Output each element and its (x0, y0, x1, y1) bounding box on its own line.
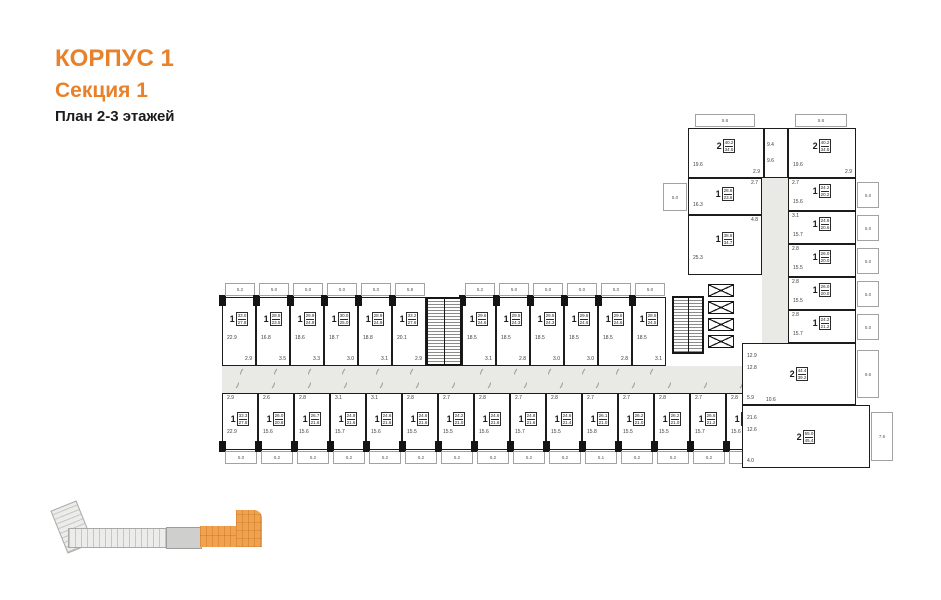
apartment-unit[interactable]: 128.924.918.83.15.0 (358, 297, 392, 366)
balcony: 5.0 (857, 215, 879, 241)
unit-rooms-count: 1 (813, 319, 818, 328)
apartment-unit[interactable]: 240.234.519.62.95.8 (688, 128, 764, 178)
apartment-unit[interactable]: 124.621.415.52.85.2 (546, 393, 582, 450)
unit-label: 124.620.6 (789, 217, 855, 231)
stairwell-junction (672, 296, 704, 354)
unit-rooms-count: 1 (470, 315, 475, 324)
unit-area-box: 26.020.8 (273, 412, 286, 426)
unit-label: 129.524.3 (497, 312, 529, 326)
unit-area-box: 24.221.0 (453, 412, 466, 426)
hall-area-label: 2.8 (407, 396, 414, 401)
unit-label: 126.020.8 (259, 412, 293, 426)
hall-area-label: 2.9 (845, 170, 852, 175)
apartment-unit[interactable]: 126.721.615.62.85.2 (294, 393, 330, 450)
hall-area-label: 4.8 (751, 218, 758, 223)
apartment-unit[interactable]: 129.624.618.53.05.0 (564, 297, 598, 366)
balcony: 5.0 (857, 248, 879, 274)
balcony: 9.6 (857, 350, 879, 398)
unit-area-box: 24.821.6 (525, 412, 538, 426)
unit-rooms-count: 1 (400, 315, 405, 324)
hall-area-label: 2.7 (515, 396, 522, 401)
room-area-label: 18.6 (295, 336, 305, 341)
unit-label: 124.221.2 (789, 316, 855, 330)
apartment-unit[interactable]: 129.624.618.52.85.0 (598, 297, 632, 366)
unit-label: 124.220.2 (789, 184, 855, 198)
unit-area-box: 29.624.6 (612, 312, 625, 326)
apartment-unit[interactable]: 129.524.318.53.05.0 (530, 297, 564, 366)
unit-rooms-count: 1 (813, 253, 818, 262)
apartment-unit[interactable]: 124.621.615.52.85.2 (402, 393, 438, 450)
unit-area-total: 24.6 (563, 413, 572, 420)
unit-label: 128.524.5 (633, 312, 665, 326)
stairwell-mid (426, 297, 462, 366)
room-area-label: 18.5 (637, 336, 647, 341)
unit-rooms-count: 1 (303, 415, 308, 424)
unit-rooms-count: 1 (504, 315, 509, 324)
apartment-unit[interactable]: 240.234.519.62.95.8 (788, 128, 856, 178)
room-area-label: 19.6 (693, 163, 703, 168)
unit-rooms-count: 1 (483, 415, 488, 424)
hall-area-label: 4.0 (747, 459, 754, 464)
balcony: 5.0 (857, 314, 879, 340)
unit-label: 126.020.0 (789, 283, 855, 297)
unit-area-total: 24.6 (383, 413, 392, 420)
unit-area-living: 21.4 (563, 420, 572, 426)
unit-rooms-count: 1 (264, 315, 269, 324)
unit-area-living: 21.6 (419, 420, 428, 426)
unit-area-living: 45.4 (805, 438, 814, 444)
unit-label: 128.523.5 (257, 312, 289, 326)
unit-area-box: 33.227.6 (406, 312, 419, 326)
apartment-unit[interactable]: 138.634.725.34.8 (688, 215, 762, 275)
unit-area-total: 26.6 (707, 413, 716, 420)
room-area-label: 15.5 (551, 430, 561, 435)
unit-area-total: 40.2 (725, 140, 734, 147)
room-area-label: 15.5 (793, 299, 803, 304)
room-area-label: 15.6 (299, 430, 309, 435)
unit-area-total: 24.2 (821, 317, 830, 324)
unit-rooms-count: 1 (267, 415, 272, 424)
vestibule-area-right: 9.6 (767, 159, 774, 164)
unit-area-total: 24.8 (347, 413, 356, 420)
unit-rooms-count: 1 (591, 415, 596, 424)
unit-area-box: 28.924.9 (372, 312, 385, 326)
hall-area-label: 2.9 (753, 170, 760, 175)
room-area-label: 15.7 (793, 332, 803, 337)
room-area-label: 22.9 (227, 336, 237, 341)
balcony: 5.2 (657, 451, 689, 464)
apartment-unit[interactable]: 128.524.518.53.15.0 (632, 297, 666, 366)
unit-area-box: 29.524.3 (544, 312, 557, 326)
unit-rooms-count: 2 (717, 142, 722, 151)
unit-area-total: 26.1 (599, 413, 608, 420)
room-area-label: 15.5 (623, 430, 633, 435)
unit-rooms-count: 2 (790, 370, 795, 379)
unit-area-living: 34.5 (821, 147, 830, 153)
unit-area-total: 26.7 (311, 413, 320, 420)
unit-area-total: 24.2 (821, 185, 830, 192)
apartment-unit[interactable]: 130.025.018.73.05.0 (324, 297, 358, 366)
room-area-label: 15.7 (335, 430, 345, 435)
apartment-unit[interactable]: 126.221.015.52.85.2 (654, 393, 690, 450)
room-area-label: 20.1 (397, 336, 407, 341)
apartment-unit[interactable]: 124.620.615.73.15.0 (788, 211, 856, 244)
apartment-unit[interactable]: 133.227.620.12.95.8 (392, 297, 426, 366)
balcony: 5.2 (297, 451, 329, 464)
balcony: 5.0 (499, 283, 529, 296)
unit-rooms-count: 1 (813, 220, 818, 229)
unit-label: 126.221.0 (619, 412, 653, 426)
unit-area-living: 21.2 (821, 324, 830, 330)
unit-area-living: 24.3 (546, 320, 555, 326)
unit-label: 124.621.6 (403, 412, 437, 426)
unit-area-living: 24.6 (478, 320, 487, 326)
minimap-core-segment (166, 527, 202, 549)
balcony: 5.0 (327, 283, 357, 296)
unit-rooms-count: 1 (411, 415, 416, 424)
hall-area-label: 5.9 (747, 396, 754, 401)
corridor-vertical (762, 178, 788, 368)
balcony: 5.0 (601, 283, 631, 296)
balcony: 5.2 (261, 451, 293, 464)
unit-rooms-count: 1 (813, 187, 818, 196)
balcony: 5.2 (513, 451, 545, 464)
balcony: 5.2 (333, 451, 365, 464)
hall-area-label: 2.7 (792, 181, 799, 186)
unit-area-living: 24.3 (512, 320, 521, 326)
unit-area-total: 26.2 (635, 413, 644, 420)
minimap[interactable] (50, 498, 245, 576)
room-area-label: 18.8 (363, 336, 373, 341)
unit-label: 124.821.6 (331, 412, 365, 426)
unit-area-total: 24.6 (821, 218, 830, 225)
balcony: 5.8 (695, 114, 755, 127)
apartment-unit[interactable]: 126.121.015.82.75.1 (582, 393, 618, 450)
room-area-label: 15.5 (793, 266, 803, 271)
apartment-unit[interactable]: 124.821.615.72.75.2 (510, 393, 546, 450)
floorplan-page: КОРПУС 1 Секция 1 План 2-3 этажей 133.02… (0, 0, 941, 600)
unit-area-living: 20.2 (821, 192, 830, 198)
unit-area-total: 28.6 (724, 188, 733, 195)
balcony: 5.0 (361, 283, 391, 296)
room-area-label: 18.7 (329, 336, 339, 341)
unit-label: 124.221.0 (439, 412, 473, 426)
unit-label: 126.221.0 (655, 412, 689, 426)
balcony: 5.8 (395, 283, 425, 296)
hall-area-label: 2.7 (623, 396, 630, 401)
unit-area-total: 40.2 (821, 140, 830, 147)
unit-label: 130.025.0 (325, 312, 357, 326)
apartment-unit[interactable]: 124.621.615.63.15.2 (366, 393, 402, 450)
unit-area-living: 27.6 (408, 320, 417, 326)
apartment-unit[interactable]: 133.027.822.92.95.2 (222, 297, 256, 366)
unit-area-box: 26.020.0 (819, 283, 832, 297)
elevator (708, 335, 734, 348)
unit-area-box: 55.045.4 (803, 430, 816, 444)
unit-area-box: 24.220.2 (819, 184, 832, 198)
elevator (708, 284, 734, 297)
unit-label: 128.924.9 (359, 312, 391, 326)
unit-label: 240.234.5 (789, 139, 855, 153)
unit-label: 129.624.6 (565, 312, 597, 326)
unit-area-total: 29.5 (546, 313, 555, 320)
unit-area-total: 26.2 (671, 413, 680, 420)
apartment-unit[interactable]: 129.624.618.53.15.2 (462, 297, 496, 366)
unit-area-box: 29.524.3 (510, 312, 523, 326)
unit-rooms-count: 1 (813, 286, 818, 295)
hall-area-label: 2.8 (621, 357, 628, 362)
hall-area-label: 3.5 (279, 357, 286, 362)
balcony: 5.0 (293, 283, 323, 296)
room-area-label: 25.3 (693, 256, 703, 261)
hall-area-label: 3.0 (587, 357, 594, 362)
unit-label: 129.624.6 (463, 312, 495, 326)
hall-area-label: 2.8 (792, 247, 799, 252)
room-area-label: 19.6 (793, 163, 803, 168)
vestibule-area-left: 9.4 (767, 143, 774, 148)
hall-area-label: 2.9 (227, 396, 234, 401)
unit-area-total: 29.6 (614, 313, 623, 320)
unit-area-box: 26.221.0 (669, 412, 682, 426)
room-area-label: 22.9 (227, 430, 237, 435)
unit-label: 124.621.6 (475, 412, 509, 426)
unit-area-box: 26.721.6 (309, 412, 322, 426)
unit-area-total: 28.9 (374, 313, 383, 320)
unit-label: 129.924.9 (291, 312, 323, 326)
unit-rooms-count: 1 (366, 315, 371, 324)
balcony: 5.2 (477, 451, 509, 464)
apartment-unit[interactable]: 126.020.815.62.65.2 (258, 393, 294, 450)
hall-area-label: 2.7 (695, 396, 702, 401)
balcony: 5.2 (405, 451, 437, 464)
balcony: 5.2 (441, 451, 473, 464)
hall-area-label: 2.8 (479, 396, 486, 401)
unit-label: 133.227.6 (393, 312, 425, 326)
unit-area-total: 24.6 (419, 413, 428, 420)
unit-area-total: 24.8 (527, 413, 536, 420)
hall-area-label: 2.8 (519, 357, 526, 362)
hall-area-label: 2.8 (792, 313, 799, 318)
unit-area-box: 28.623.6 (722, 187, 735, 201)
elevator (708, 301, 734, 314)
room-area-label: 18.5 (535, 336, 545, 341)
hall-area-label: 2.7 (751, 181, 758, 186)
unit-rooms-count: 1 (298, 315, 303, 324)
unit-rooms-count: 1 (663, 415, 668, 424)
room-area-label: 18.5 (603, 336, 613, 341)
apartment-unit[interactable]: 126.221.015.52.75.2 (618, 393, 654, 450)
unit-label: 129.624.6 (599, 312, 631, 326)
unit-label: 240.234.5 (689, 139, 763, 153)
room-area-label: 15.6 (479, 430, 489, 435)
balcony: 5.0 (663, 183, 687, 211)
unit-label: 124.621.6 (367, 412, 401, 426)
unit-area-living: 21.6 (491, 420, 500, 426)
apartment-unit[interactable]: 128.623.616.32.75.0 (688, 178, 762, 215)
hall-area-label: 2.8 (299, 396, 306, 401)
hall-area-label: 3.3 (313, 357, 320, 362)
unit-area-living: 24.6 (614, 320, 623, 326)
apartment-unit[interactable]: 126.020.015.52.85.0 (788, 244, 856, 277)
hall-area-label: 2.8 (551, 396, 558, 401)
unit-area-box: 44.439.2 (796, 367, 809, 381)
unit-area-living: 34.5 (725, 147, 734, 153)
unit-label: 124.621.4 (547, 412, 581, 426)
unit-rooms-count: 1 (375, 415, 380, 424)
unit-area-total: 24.2 (455, 413, 464, 420)
unit-area-living: 21.6 (347, 420, 356, 426)
unit-label: 126.020.0 (789, 250, 855, 264)
apartment-unit[interactable]: 124.221.015.52.75.2 (438, 393, 474, 450)
unit-rooms-count: 1 (735, 415, 740, 424)
apartment-unit[interactable]: 124.621.615.62.85.2 (474, 393, 510, 450)
unit-area-living: 24.9 (306, 320, 315, 326)
balcony: 5.0 (225, 451, 257, 464)
unit-area-living: 20.0 (821, 291, 830, 297)
room-area-label: 15.7 (515, 430, 525, 435)
unit-area-box: 40.234.5 (819, 139, 832, 153)
unit-area-living: 21.0 (671, 420, 680, 426)
unit-area-living: 24.9 (374, 320, 383, 326)
hall-area-label: 3.0 (553, 357, 560, 362)
balcony: 5.0 (857, 281, 879, 307)
balcony: 5.2 (549, 451, 581, 464)
unit-area-living: 21.2 (707, 420, 716, 426)
unit-area-living: 21.6 (527, 420, 536, 426)
hall-area-label: 3.1 (381, 357, 388, 362)
room-area-label: 16.3 (693, 203, 703, 208)
balcony: 5.0 (635, 283, 665, 296)
hall-area-label: 2.6 (263, 396, 270, 401)
unit-rooms-count: 1 (572, 315, 577, 324)
unit-area-living: 20.8 (275, 420, 284, 426)
unit-area-box: 29.924.9 (304, 312, 317, 326)
unit-area-total: 33.3 (239, 413, 248, 420)
unit-rooms-count: 1 (332, 315, 337, 324)
apartment-unit[interactable]: 133.327.822.92.95.0 (222, 393, 258, 450)
unit-label: 244.439.2 (743, 367, 855, 381)
unit-area-living: 20.0 (821, 258, 830, 264)
room-area-label: 21.6 (747, 416, 757, 421)
unit-area-box: 29.624.6 (476, 312, 489, 326)
unit-rooms-count: 1 (716, 190, 721, 199)
unit-area-box: 38.634.7 (722, 232, 735, 246)
unit-area-box: 24.621.6 (381, 412, 394, 426)
apartment-unit[interactable]: 129.524.318.52.85.0 (496, 297, 530, 366)
hall-area-label: 2.9 (415, 357, 422, 362)
unit-area-total: 29.6 (580, 313, 589, 320)
room-area-label: 15.6 (263, 430, 273, 435)
unit-area-total: 33.0 (238, 313, 247, 320)
unit-area-living: 21.6 (311, 420, 320, 426)
hall-area-label: 3.1 (792, 214, 799, 219)
unit-area-total: 28.5 (272, 313, 281, 320)
minimap-building-strip (68, 528, 170, 548)
unit-rooms-count: 2 (813, 142, 818, 151)
unit-area-total: 26.0 (821, 284, 830, 291)
lobby-area-label: 10.6 (766, 398, 776, 403)
apartment-unit[interactable]: 124.220.215.62.75.0 (788, 178, 856, 211)
unit-area-box: 24.621.4 (561, 412, 574, 426)
hall-area-label: 3.0 (347, 357, 354, 362)
unit-area-box: 24.821.6 (345, 412, 358, 426)
unit-area-total: 28.5 (648, 313, 657, 320)
unit-area-living: 24.5 (648, 320, 657, 326)
unit-rooms-count: 1 (555, 415, 560, 424)
unit-area-living: 21.0 (455, 420, 464, 426)
minimap-highlight-block[interactable] (236, 510, 262, 547)
apartment-unit[interactable]: 126.621.215.72.75.2 (690, 393, 726, 450)
hall-area-label: 2.7 (587, 396, 594, 401)
unit-rooms-count: 1 (699, 415, 704, 424)
unit-area-living: 21.0 (635, 420, 644, 426)
balcony: 5.2 (621, 451, 653, 464)
hall-area-label: 3.1 (335, 396, 342, 401)
hall-area-label: 2.9 (245, 357, 252, 362)
unit-area-box: 26.121.0 (597, 412, 610, 426)
unit-label: 138.634.7 (689, 232, 761, 246)
hall-area-label: 2.8 (659, 396, 666, 401)
hall-area-label: 2.7 (443, 396, 450, 401)
unit-area-living: 24.6 (580, 320, 589, 326)
room-area-label: 15.6 (371, 430, 381, 435)
balcony: 5.0 (533, 283, 563, 296)
balcony: 7.6 (871, 412, 893, 461)
room2-area-label: 12.8 (747, 366, 757, 371)
unit-label: 128.623.6 (689, 187, 761, 201)
room-area-label: 15.6 (731, 430, 741, 435)
hall-area-label: 2.8 (731, 396, 738, 401)
unit-area-box: 28.523.5 (270, 312, 283, 326)
apartment-unit[interactable]: 255.045.421.612.64.07.6 (742, 405, 870, 468)
unit-rooms-count: 1 (606, 315, 611, 324)
unit-rooms-count: 1 (339, 415, 344, 424)
unit-rooms-count: 1 (716, 235, 721, 244)
balcony: 5.1 (585, 451, 617, 464)
hall-area-label: 2.8 (792, 280, 799, 285)
unit-area-living: 27.8 (238, 320, 247, 326)
unit-area-box: 26.621.2 (705, 412, 718, 426)
unit-area-box: 24.621.6 (417, 412, 430, 426)
balcony: 5.2 (693, 451, 725, 464)
apartment-unit[interactable]: 124.821.615.73.15.2 (330, 393, 366, 450)
apartment-unit[interactable]: 126.020.015.52.85.0 (788, 277, 856, 310)
unit-rooms-count: 1 (640, 315, 645, 324)
unit-rooms-count: 1 (627, 415, 632, 424)
unit-label: 124.821.6 (511, 412, 545, 426)
unit-label: 133.327.8 (223, 412, 257, 426)
unit-area-living: 34.7 (724, 240, 733, 246)
hall-area-label: 3.1 (371, 396, 378, 401)
apartment-unit[interactable]: 244.439.212.912.85.99.6 (742, 343, 856, 405)
unit-area-total: 26.0 (275, 413, 284, 420)
unit-rooms-count: 1 (447, 415, 452, 424)
room-area-label: 16.8 (261, 336, 271, 341)
unit-area-box: 40.234.5 (723, 139, 736, 153)
apartment-unit[interactable]: 124.221.215.72.85.0 (788, 310, 856, 343)
unit-rooms-count: 1 (538, 315, 543, 324)
entry-vestibule: 9.49.6 (764, 128, 788, 178)
unit-rooms-count: 1 (231, 415, 236, 424)
apartment-unit[interactable]: 128.523.516.83.55.0 (256, 297, 290, 366)
unit-area-box: 24.221.2 (819, 316, 832, 330)
balcony: 5.2 (369, 451, 401, 464)
room-area-label: 18.5 (467, 336, 477, 341)
apartment-unit[interactable]: 129.924.918.63.35.0 (290, 297, 324, 366)
unit-area-box: 26.020.0 (819, 250, 832, 264)
unit-area-living: 21.0 (599, 420, 608, 426)
unit-label: 255.045.4 (743, 430, 869, 444)
